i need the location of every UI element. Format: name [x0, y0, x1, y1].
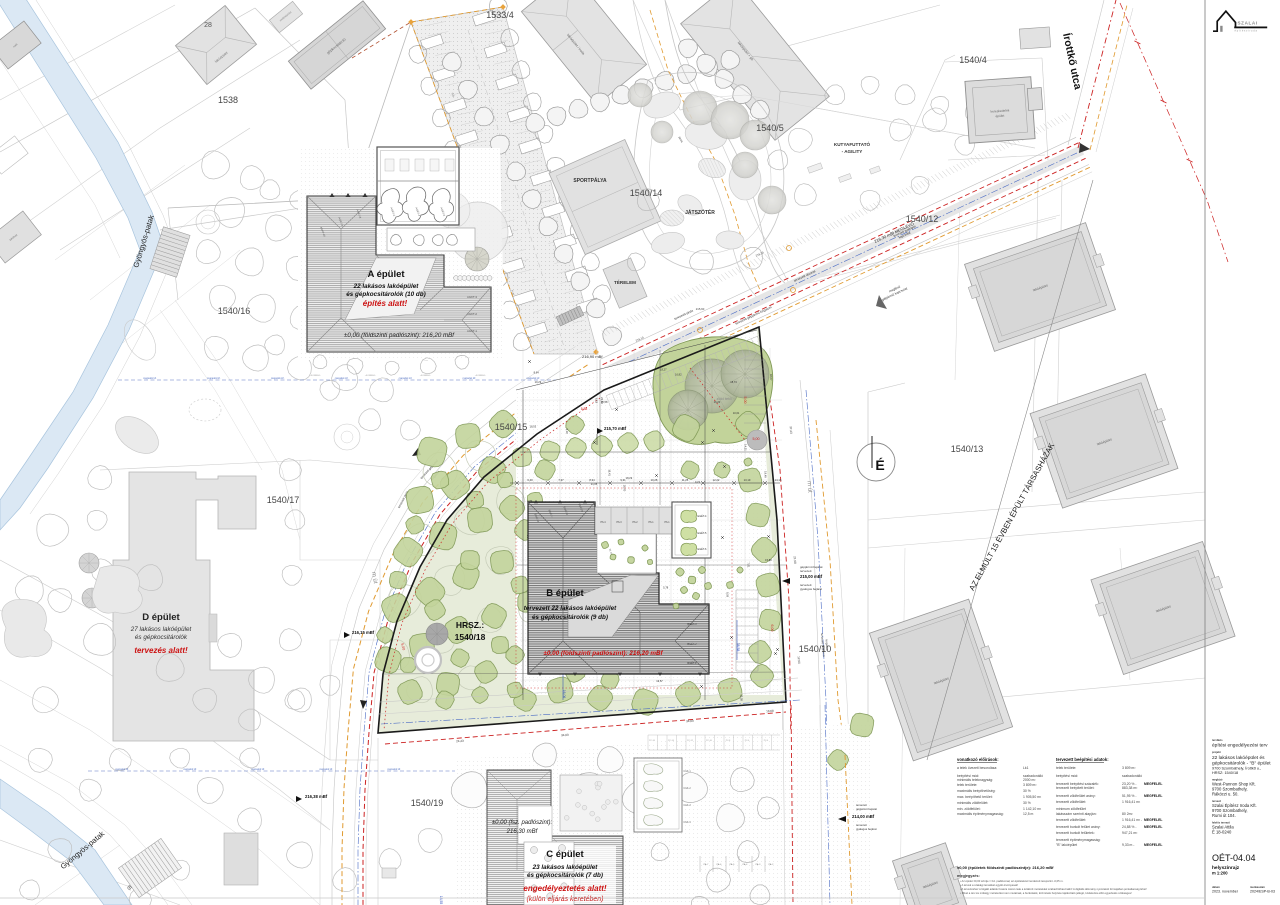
- svg-text:EGÉT-4: EGÉT-4: [698, 515, 708, 518]
- svg-text:csapadék ktf.: csapadék ktf.: [251, 768, 265, 771]
- svg-text:P6-2: P6-2: [632, 521, 638, 524]
- svg-text:- AGILITY: - AGILITY: [842, 149, 863, 154]
- svg-text:m 1:200: m 1:200: [1212, 871, 1228, 876]
- svg-text:27 lakásos lakóépület: 27 lakásos lakóépület: [130, 626, 192, 633]
- svg-text:AGKT-1: AGKT-1: [467, 329, 477, 333]
- svg-text:és gépkocsitárolók (7 db): és gépkocsitárolók (7 db): [527, 872, 603, 879]
- svg-text:épület: épület: [995, 114, 1004, 119]
- svg-text:16,41: 16,41: [607, 469, 611, 476]
- svg-text:18,29: 18,29: [626, 476, 633, 480]
- svg-text:22 lakásos lakóépület: 22 lakásos lakóépület: [353, 283, 420, 290]
- svg-text:2024/ESP-B-03: 2024/ESP-B-03: [1250, 890, 1275, 894]
- svg-text:1540/15: 1540/15: [495, 422, 528, 432]
- svg-text:és gépkocsitárolók: és gépkocsitárolók: [135, 634, 188, 641]
- svg-text:minimális zöldfelület:: minimális zöldfelület:: [957, 801, 988, 805]
- svg-text:CGK-4: CGK-4: [683, 821, 691, 824]
- svg-text:P6-3: P6-3: [616, 521, 622, 524]
- svg-text:Lk1: Lk1: [1023, 766, 1029, 770]
- svg-text:PC-12: PC-12: [687, 740, 694, 742]
- svg-text:tervezett beépítési adatok:: tervezett beépítési adatok:: [1056, 757, 1109, 762]
- svg-text:A épület: A épület: [367, 269, 405, 280]
- svg-text:51,95 % -: 51,95 % -: [1122, 794, 1137, 798]
- svg-text:B épület: B épület: [546, 588, 584, 599]
- svg-text:SPORTPÁLYA: SPORTPÁLYA: [573, 177, 607, 184]
- svg-text:AGKT-2: AGKT-2: [467, 312, 477, 316]
- svg-text:1 916,41 m² -: 1 916,41 m² -: [1122, 818, 1142, 822]
- svg-text:2000 m²: 2000 m²: [1023, 778, 1036, 782]
- svg-text:+KORREG: +KORREG: [310, 375, 321, 377]
- svg-text:7,01: 7,01: [746, 562, 750, 568]
- svg-text:PC-10: PC-10: [706, 740, 713, 742]
- svg-text:216,90 mBf: 216,90 mBf: [582, 354, 603, 359]
- svg-text:13,19: 13,19: [744, 478, 751, 482]
- svg-text:1540/14: 1540/14: [630, 188, 663, 198]
- svg-text:1540/5: 1540/5: [756, 123, 784, 133]
- svg-text:15,58: 15,58: [740, 694, 744, 701]
- svg-text:építésziroda: építésziroda: [1235, 29, 1258, 33]
- svg-text:és gépkocsitárolók (9 db): és gépkocsitárolók (9 db): [532, 614, 608, 621]
- svg-text:PA-5: PA-5: [730, 863, 735, 866]
- svg-text:csapadék ktf.: csapadék ktf.: [115, 768, 129, 771]
- svg-text:19,49: 19,49: [764, 471, 768, 478]
- svg-text:tervezett 22 lakásos lakóépüle: tervezett 22 lakásos lakóépület: [524, 605, 617, 612]
- svg-text:P6-1: P6-1: [664, 521, 670, 524]
- svg-text:gépjármű bejárat: gépjármű bejárat: [800, 565, 823, 569]
- svg-text:PC-16: PC-16: [649, 740, 656, 742]
- svg-text:Rákóczi u. 50.: Rákóczi u. 50.: [1212, 792, 1239, 797]
- svg-text:minimum zöldfelület: minimum zöldfelület: [1056, 807, 1086, 811]
- svg-text:csapadék ktf.: csapadék ktf.: [319, 768, 333, 771]
- svg-text:PA-2: PA-2: [769, 863, 774, 866]
- svg-text:csapadék ktf.: csapadék ktf.: [207, 377, 221, 380]
- svg-text:építés alatt!: építés alatt!: [363, 299, 408, 308]
- svg-text:építési engedélyezési terv: építési engedélyezési terv: [1212, 743, 1268, 749]
- svg-text:engedélyeztetés alatt!: engedélyeztetés alatt!: [523, 884, 606, 893]
- svg-text:216,30 mBf: 216,30 mBf: [506, 829, 539, 835]
- svg-text:gyalogos bejárat: gyalogos bejárat: [856, 827, 877, 831]
- svg-text:10,29: 10,29: [535, 380, 542, 384]
- svg-text:1538: 1538: [218, 95, 238, 105]
- svg-text:+KORREG: +KORREG: [475, 375, 486, 377]
- svg-text:JÁTSZÓTÉR: JÁTSZÓTÉR: [685, 208, 715, 216]
- svg-text:PC-14: PC-14: [668, 740, 675, 742]
- svg-text:MEGFELEL: MEGFELEL: [1144, 794, 1162, 798]
- svg-text:tervfázis: tervfázis: [1212, 738, 1223, 742]
- svg-text:9,59: 9,59: [726, 592, 730, 598]
- svg-text:tervezett burkolt felület arán: tervezett burkolt felület arány:: [1056, 825, 1101, 829]
- svg-text:dátum: dátum: [1212, 885, 1220, 889]
- svg-text:PA-6: PA-6: [717, 863, 722, 866]
- svg-text:215,90: 215,90: [696, 307, 705, 311]
- svg-text:• A tervezéshez szolgáló adat: • A tervezéshez szolgáló adatok hossza m…: [960, 887, 1147, 891]
- svg-text:PA-7: PA-7: [704, 863, 709, 866]
- svg-text:SZALAI: SZALAI: [1238, 21, 1258, 26]
- svg-text:max. beépíthető terület:: max. beépíthető terület:: [957, 795, 993, 799]
- svg-text:• A tervek a szakági tervekke: • A tervek a szakági tervekkel együtt ér…: [960, 883, 1018, 887]
- svg-text:5,00: 5,00: [753, 437, 760, 441]
- svg-text:MEGFELEL: MEGFELEL: [1144, 818, 1162, 822]
- svg-text:É 18-0240: É 18-0240: [1212, 830, 1232, 835]
- svg-text:9,33 m -: 9,33 m -: [1122, 843, 1134, 847]
- svg-text:216,15 mBf: 216,15 mBf: [352, 630, 375, 635]
- svg-text:215,70 mBf: 215,70 mBf: [604, 426, 627, 431]
- svg-text:1533/4: 1533/4: [486, 10, 514, 20]
- svg-text:• Mivel a terv és műtárgy mér: • Mivel a terv és műtárgy méretezést nem…: [960, 891, 1132, 895]
- svg-text:24,43: 24,43: [456, 739, 464, 744]
- svg-text:5,88: 5,88: [581, 407, 588, 411]
- svg-text:16,06: 16,06: [562, 690, 566, 699]
- svg-text:tervezett zöldfelület:: tervezett zöldfelület:: [1056, 818, 1086, 822]
- svg-text:OÉT-04.04: OÉT-04.04: [1212, 853, 1256, 863]
- svg-text:csapadék ktf.: csapadék ktf.: [462, 377, 476, 380]
- svg-text:18,74: 18,74: [730, 380, 737, 384]
- svg-text:D épület: D épület: [142, 612, 180, 623]
- svg-text:11,25: 11,25: [682, 478, 689, 482]
- svg-text:18,07: 18,07: [769, 374, 773, 381]
- svg-text:214,00 mBf: 214,00 mBf: [852, 814, 875, 819]
- svg-text:MEGFELEL: MEGFELEL: [1144, 782, 1162, 786]
- svg-text:14,16: 14,16: [775, 478, 782, 482]
- svg-text:37,43: 37,43: [789, 426, 793, 434]
- svg-text:3 809 m²: 3 809 m²: [1122, 766, 1136, 770]
- svg-text:5,00: 5,00: [743, 397, 747, 404]
- svg-text:tervezett beépített terület:: tervezett beépített terület:: [1056, 786, 1095, 790]
- svg-text:PA-4: PA-4: [743, 863, 748, 866]
- svg-text:13,68: 13,68: [766, 709, 774, 714]
- svg-text:15,80: 15,80: [765, 558, 772, 562]
- svg-text:16,00: 16,00: [623, 485, 627, 492]
- svg-text:±0,00 (épületek földszinti pad: ±0,00 (épületek földszinti padlószintje)…: [957, 865, 1054, 870]
- svg-text:KUTYAFUTTATÓ: KUTYAFUTTATÓ: [834, 140, 871, 147]
- svg-text:1540/13: 1540/13: [951, 444, 984, 454]
- svg-text:947,21 m²: 947,21 m²: [1122, 831, 1138, 835]
- svg-text:21,68: 21,68: [793, 556, 797, 564]
- svg-text:3 809 m²: 3 809 m²: [1023, 783, 1037, 787]
- svg-text:P6-4: P6-4: [600, 521, 606, 524]
- svg-text:telek területe:: telek területe:: [957, 783, 977, 787]
- svg-text:±0,00 (földszinti padlószint):: ±0,00 (földszinti padlószint): 216,20 mB…: [344, 332, 455, 339]
- svg-text:m út: m út: [805, 481, 812, 493]
- svg-text:csapadék ktf.: csapadék ktf.: [335, 377, 349, 380]
- svg-text:12,60: 12,60: [797, 656, 801, 664]
- svg-text:80 2m²: 80 2m²: [1122, 812, 1133, 816]
- svg-text:9,23: 9,23: [695, 480, 701, 484]
- svg-text:és gépkocsitárolók (10 db): és gépkocsitárolók (10 db): [346, 291, 425, 298]
- svg-text:munkaszám: munkaszám: [1250, 885, 1266, 889]
- svg-text:beépítési mód:: beépítési mód:: [1056, 774, 1078, 778]
- svg-text:tervezett: tervezett: [800, 569, 812, 573]
- svg-text:Rumi út 104.: Rumi út 104.: [1212, 813, 1236, 818]
- svg-text:csapadék ktf.: csapadék ktf.: [271, 377, 285, 380]
- svg-text:34,00: 34,00: [686, 719, 694, 724]
- svg-text:12,22: 12,22: [713, 478, 720, 482]
- svg-text:1 916,41 m²: 1 916,41 m²: [1122, 800, 1141, 804]
- svg-text:• Az épület ±0,00 szintje = f: • Az épület ±0,00 szintje = fsz. padlóvo…: [960, 879, 1064, 883]
- svg-text:1540/12: 1540/12: [906, 214, 939, 224]
- svg-text:18,55: 18,55: [439, 896, 443, 905]
- svg-text:vonatkozó előírások:: vonatkozó előírások:: [957, 757, 999, 762]
- svg-text:szabadonálló: szabadonálló: [1122, 774, 1142, 778]
- svg-text:MEGFELEL: MEGFELEL: [1144, 843, 1162, 847]
- svg-text:22 lakásos lakóépület és: 22 lakásos lakóépület és: [1212, 755, 1265, 761]
- svg-text:216,38 mBf: 216,38 mBf: [305, 794, 328, 799]
- svg-text:23,24: 23,24: [600, 397, 604, 404]
- svg-text:23 lakásos lakóépület: 23 lakásos lakóépület: [532, 864, 599, 871]
- svg-text:MEGFELEL: MEGFELEL: [1144, 825, 1162, 829]
- svg-text:a telek övezeti besorolása:: a telek övezeti besorolása:: [957, 766, 997, 770]
- svg-text:CGK-3: CGK-3: [683, 804, 691, 807]
- svg-text:18,27: 18,27: [660, 368, 667, 372]
- svg-text:minimális teleknagyság:: minimális teleknagyság:: [957, 778, 993, 782]
- svg-text:TÉRELEM: TÉRELEM: [614, 278, 636, 285]
- svg-text:csapadék ktf.: csapadék ktf.: [526, 377, 540, 380]
- svg-text:34,00: 34,00: [561, 733, 569, 738]
- svg-text:min. zöldfelület:: min. zöldfelület:: [957, 807, 981, 811]
- svg-text:csapadék ktf.: csapadék ktf.: [183, 768, 197, 771]
- svg-text:2023. november: 2023. november: [1212, 890, 1239, 894]
- svg-text:1540/17: 1540/17: [267, 495, 300, 505]
- svg-text:1540/4: 1540/4: [959, 55, 987, 65]
- svg-text:21,05: 21,05: [591, 482, 598, 486]
- svg-text:16,20: 16,20: [714, 400, 721, 404]
- svg-text:6,18: 6,18: [594, 398, 598, 404]
- svg-text:12,5 m: 12,5 m: [1023, 812, 1034, 816]
- svg-text:24,88 % -: 24,88 % -: [1122, 825, 1137, 829]
- svg-text:É: É: [875, 457, 884, 473]
- svg-text:6,40: 6,40: [527, 478, 533, 482]
- svg-text:±0,00 (fsz. padlószint):: ±0,00 (fsz. padlószint):: [492, 820, 553, 826]
- svg-text:AGKT-3: AGKT-3: [467, 295, 477, 299]
- svg-text:megjegyzés:: megjegyzés:: [957, 874, 980, 878]
- svg-text:P6-1: P6-1: [648, 521, 654, 524]
- svg-text:tervezés alatt!: tervezés alatt!: [134, 646, 188, 655]
- svg-text:tervezett zöldfelület:: tervezett zöldfelület:: [1056, 800, 1086, 804]
- svg-text:1540/18: 1540/18: [455, 632, 486, 642]
- svg-text:5,78: 5,78: [663, 586, 669, 590]
- svg-text:PA-3: PA-3: [756, 863, 761, 866]
- svg-text:7,37: 7,37: [558, 478, 564, 482]
- svg-text:19,57: 19,57: [656, 679, 663, 683]
- svg-text:8,34: 8,34: [589, 478, 595, 482]
- svg-text:CGK-1: CGK-1: [683, 770, 691, 773]
- svg-text:CGK-2: CGK-2: [683, 787, 691, 790]
- svg-text:csapadék ktf.: csapadék ktf.: [143, 377, 157, 380]
- svg-text:maximális építménymagasság:: maximális építménymagasság:: [957, 812, 1004, 816]
- svg-text:30 %: 30 %: [1023, 789, 1031, 793]
- svg-text:EGÉT-6: EGÉT-6: [698, 548, 708, 551]
- svg-text:tervezett zöldfelület arány:: tervezett zöldfelület arány:: [1056, 794, 1096, 798]
- svg-text:9,30: 9,30: [565, 429, 569, 435]
- svg-text:30 %: 30 %: [1023, 801, 1031, 805]
- svg-text:HRSZ: 1540/18: HRSZ: 1540/18: [1212, 771, 1238, 775]
- svg-text:8,64: 8,64: [534, 371, 540, 375]
- svg-text:maximális beépíthetőség:: maximális beépíthetőség:: [957, 789, 996, 793]
- svg-text:(külön eljárás keretében): (külön eljárás keretében): [526, 896, 603, 903]
- svg-text:10,61: 10,61: [733, 411, 740, 415]
- svg-text:1 142,10 m²: 1 142,10 m²: [1023, 807, 1042, 811]
- svg-text:C épület: C épület: [546, 849, 584, 860]
- svg-text:gyalogos bejárat: gyalogos bejárat: [800, 587, 822, 591]
- svg-text:883,38 m²: 883,38 m²: [1122, 786, 1138, 790]
- svg-text:csapadék ktf.: csapadék ktf.: [399, 377, 413, 380]
- svg-text:16,82: 16,82: [675, 373, 682, 377]
- svg-text:"B" lakóépület: "B" lakóépület: [1056, 843, 1077, 847]
- svg-text:±0,00 (földszinti padlószint):: ±0,00 (földszinti padlószint): 216,20 mB…: [543, 650, 663, 657]
- svg-text:6,00: 6,00: [770, 625, 774, 632]
- svg-text:18,03: 18,03: [530, 424, 537, 428]
- svg-text:csapadék ktf.: csapadék ktf.: [387, 768, 401, 771]
- svg-text:+KORREG: +KORREG: [420, 375, 431, 377]
- svg-text:215,00 mBf: 215,00 mBf: [800, 574, 823, 579]
- svg-text:1540/19: 1540/19: [411, 798, 444, 808]
- svg-text:28: 28: [204, 22, 212, 29]
- svg-text:tervezett építménymagasság:: tervezett építménymagasság:: [1056, 838, 1101, 842]
- svg-text:9700 Szombathely, Írottkő u.,: 9700 Szombathely, Írottkő u.,: [1212, 767, 1261, 771]
- svg-text:tervezett burkolt felületek:: tervezett burkolt felületek:: [1056, 831, 1095, 835]
- svg-text:+KORREG: +KORREG: [365, 375, 376, 377]
- svg-text:HRSZ.:: HRSZ.:: [456, 620, 485, 630]
- svg-text:1 905,50 m²: 1 905,50 m²: [1023, 795, 1042, 799]
- svg-text:lakásszám szerinti alapján:: lakásszám szerinti alapján:: [1056, 812, 1097, 816]
- svg-text:14,21: 14,21: [744, 444, 748, 451]
- svg-text:10,28: 10,28: [651, 478, 658, 482]
- svg-text:projekt: projekt: [1212, 750, 1221, 754]
- svg-text:gépjármű bejárat: gépjármű bejárat: [856, 807, 877, 811]
- svg-text:EGÉT-5: EGÉT-5: [698, 532, 708, 535]
- svg-text:telek területe:: telek területe:: [1056, 766, 1076, 770]
